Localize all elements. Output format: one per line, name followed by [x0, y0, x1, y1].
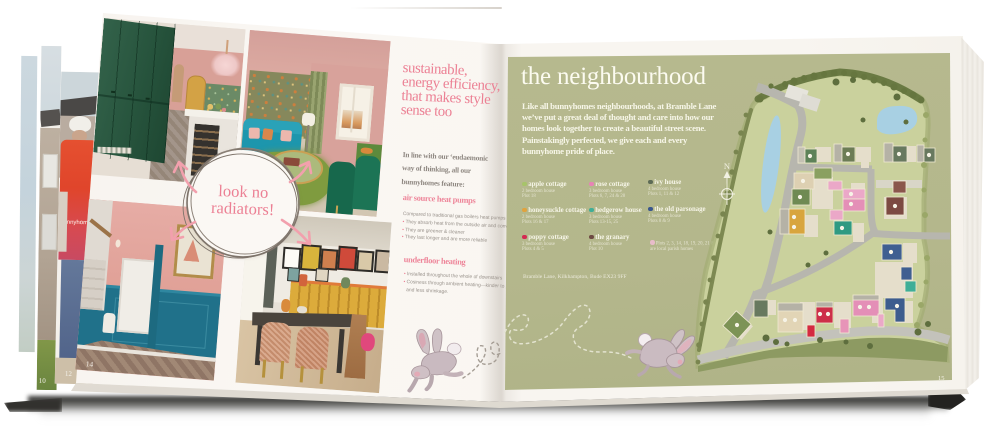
- svg-text:N: N: [724, 161, 730, 171]
